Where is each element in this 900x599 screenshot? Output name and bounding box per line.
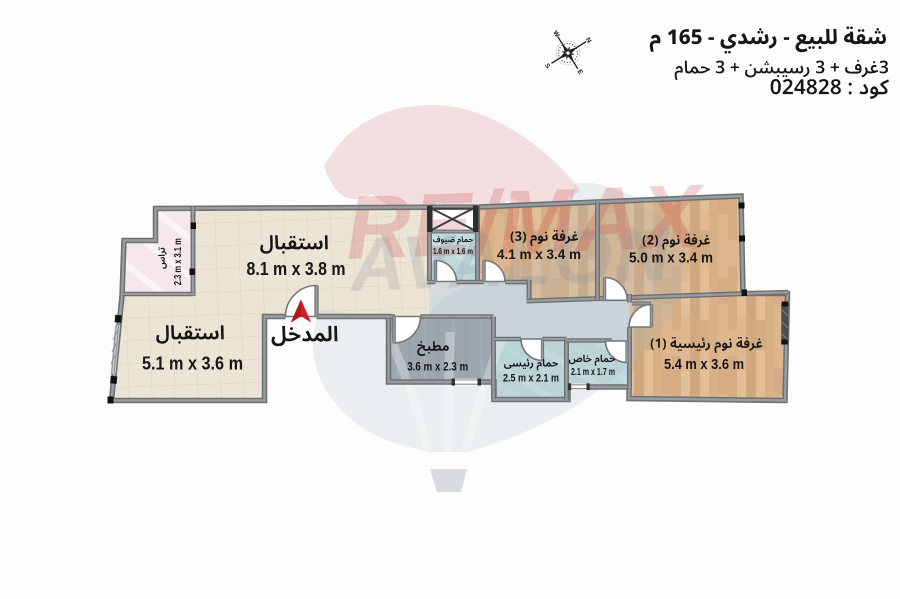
svg-text:2.3 m x 3.1 m: 2.3 m x 3.1 m <box>173 238 184 285</box>
svg-text:8.1 m x 3.8 m: 8.1 m x 3.8 m <box>247 259 346 279</box>
svg-text:2.5 m x 2.1 m: 2.5 m x 2.1 m <box>503 373 559 385</box>
svg-text:1.6 m x 1.6 m: 1.6 m x 1.6 m <box>433 246 473 256</box>
svg-text:4.1 m x 3.4 m: 4.1 m x 3.4 m <box>497 246 581 262</box>
svg-text:2.1 m x 1.7 m: 2.1 m x 1.7 m <box>571 366 615 378</box>
svg-text:3.6 m x 2.3 m: 3.6 m x 2.3 m <box>407 359 468 373</box>
svg-text:5.0 m x 3.4 m: 5.0 m x 3.4 m <box>629 250 713 267</box>
svg-text:5.4 m x 3.6 m: 5.4 m x 3.6 m <box>664 356 744 373</box>
svg-text:5.1 m x 3.6 m: 5.1 m x 3.6 m <box>142 354 243 374</box>
